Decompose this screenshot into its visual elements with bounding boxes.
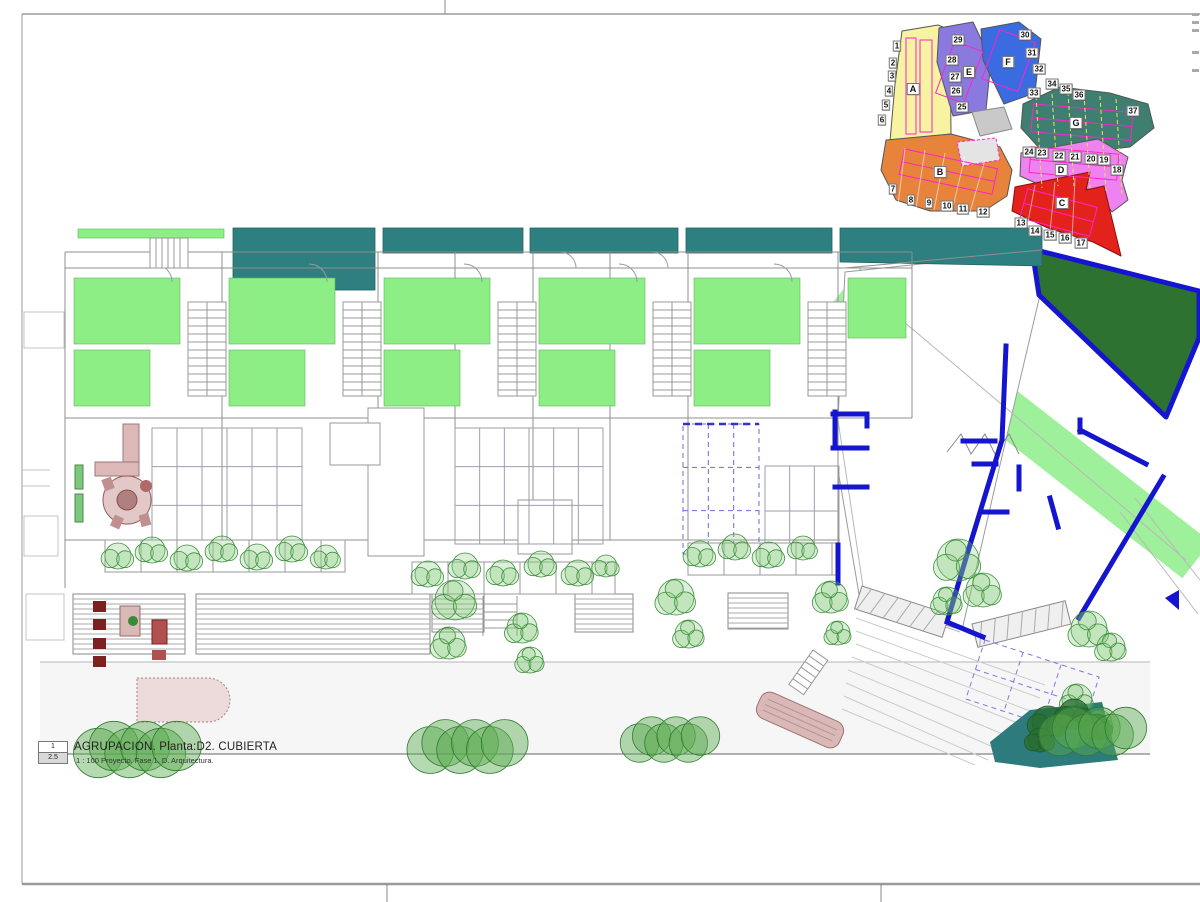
lot-tag-12: 12 — [977, 207, 990, 218]
zone-letter-C: C — [1056, 197, 1069, 209]
lot-tag-36: 36 — [1073, 90, 1086, 101]
title-block-boxes: 1 2.5 — [38, 741, 68, 764]
registration-dashes — [1192, 13, 1199, 72]
lot-tag-19: 19 — [1098, 155, 1111, 166]
lot-tag-32: 32 — [1033, 64, 1046, 75]
shrub-glyph — [592, 555, 619, 577]
red-chair-2 — [93, 619, 106, 630]
lot-tag-28: 28 — [946, 55, 959, 66]
lot-tag-23: 23 — [1036, 148, 1049, 159]
pergola-grid-3 — [683, 424, 759, 554]
blue-wall-corner — [1165, 590, 1179, 610]
lot-tag-27: 27 — [949, 72, 962, 83]
chair-3 — [139, 513, 152, 527]
bush-glyph — [407, 720, 528, 774]
lot-tag-24: 24 — [1023, 147, 1036, 158]
louver-panel-4 — [575, 594, 633, 632]
table-plant — [128, 616, 138, 626]
lot-tag-5: 5 — [882, 100, 890, 111]
lot-tag-6: 6 — [878, 115, 886, 126]
pergola-grid-2 — [455, 428, 603, 544]
stool — [140, 480, 152, 492]
lot-tag-26: 26 — [950, 86, 963, 97]
red-chair-1 — [93, 601, 106, 612]
tree-glyph — [824, 621, 851, 645]
lot-tag-21: 21 — [1069, 152, 1082, 163]
terrace-furniture — [75, 424, 152, 530]
teal-roof-3 — [530, 228, 678, 253]
lot-tag-25: 25 — [956, 102, 969, 113]
lot-tag-3: 3 — [888, 71, 896, 82]
top-left-stair — [150, 238, 188, 268]
dark-green-lawn — [1032, 249, 1199, 417]
table-2 — [152, 620, 167, 644]
zone-letter-G: G — [1069, 117, 1082, 129]
lot-tag-11: 11 — [957, 204, 969, 215]
lot-tag-14: 14 — [1029, 226, 1042, 237]
housing-units — [74, 264, 906, 406]
lot-tag-15: 15 — [1044, 230, 1057, 241]
lot-tag-33: 33 — [1028, 88, 1041, 99]
round-table-top — [117, 490, 137, 510]
lot-tag-17: 17 — [1075, 238, 1088, 249]
lot-tag-10: 10 — [941, 201, 954, 212]
title-block: 1 2.5 AGRUPACION. Planta:D2. CUBIERTA 1 … — [38, 741, 277, 765]
key-gray-block-1 — [972, 107, 1012, 136]
zone-letter-B: B — [934, 166, 947, 178]
lot-tag-20: 20 — [1085, 154, 1098, 165]
side-planter-2 — [75, 494, 83, 522]
pergola-grid-1 — [152, 428, 302, 544]
red-chair-4 — [93, 656, 106, 667]
skylight-boxes — [330, 408, 572, 556]
pool — [137, 678, 230, 722]
green-roof-end-bay — [848, 278, 906, 338]
teal-roof-5 — [840, 228, 1042, 266]
lot-tag-7: 7 — [889, 184, 897, 195]
drawing-title: AGRUPACION. Planta:D2. CUBIERTA — [74, 741, 277, 753]
lot-tag-16: 16 — [1059, 233, 1072, 244]
lot-tag-30: 30 — [1019, 30, 1032, 41]
drawing-sheet: 1234567891011121314151617181920212223242… — [0, 0, 1200, 902]
tree-glyph — [812, 581, 848, 613]
lot-tag-22: 22 — [1053, 151, 1066, 162]
lot-tag-1: 1 — [893, 41, 901, 52]
louver-panel-2 — [196, 594, 430, 654]
lot-tag-35: 35 — [1060, 84, 1073, 95]
title-block-text: AGRUPACION. Planta:D2. CUBIERTA 1 : 100 … — [74, 741, 277, 765]
lot-tag-37: 37 — [1127, 106, 1140, 117]
lot-tag-13: 13 — [1015, 218, 1028, 229]
lot-tag-2: 2 — [889, 58, 897, 69]
detail-number-box: 1 — [38, 741, 68, 753]
bush-glyph — [1039, 707, 1147, 756]
shrub-glyph — [448, 553, 480, 579]
teal-roof-2 — [383, 228, 523, 253]
tree-glyph — [655, 579, 696, 615]
door-swing-arcs — [560, 252, 668, 268]
tree-glyph — [515, 647, 544, 673]
lot-tag-29: 29 — [952, 35, 965, 46]
zone-letter-F: F — [1002, 56, 1014, 68]
drawing-subtitle: 1 : 100 Proyecto. Fase 1. D. Arquitectur… — [76, 756, 277, 765]
red-seat — [152, 650, 166, 660]
louver-panel-5 — [728, 593, 788, 629]
side-planter-1 — [75, 465, 83, 489]
shrub-glyph — [524, 551, 557, 577]
plan-canvas — [0, 0, 1200, 902]
zone-letter-A: A — [907, 83, 920, 95]
lot-tag-8: 8 — [907, 195, 915, 206]
tile-counter-h — [95, 462, 139, 476]
neighbor-outlines — [22, 312, 64, 640]
lot-tag-31: 31 — [1026, 48, 1039, 59]
lot-tag-18: 18 — [1111, 165, 1124, 176]
tree-glyph — [504, 613, 538, 643]
scale-code-box: 2.5 — [38, 753, 68, 764]
zone-letter-E: E — [963, 66, 975, 78]
lot-tag-9: 9 — [925, 198, 933, 209]
tree-glyph — [673, 620, 705, 648]
shrub-glyph — [718, 534, 751, 560]
teal-roof-4 — [686, 228, 832, 253]
lot-tag-4: 4 — [885, 86, 893, 97]
lot-tag-34: 34 — [1046, 79, 1059, 90]
zone-letter-D: D — [1055, 164, 1068, 176]
red-chair-3 — [93, 638, 106, 649]
green-strip-top-left — [78, 229, 224, 238]
